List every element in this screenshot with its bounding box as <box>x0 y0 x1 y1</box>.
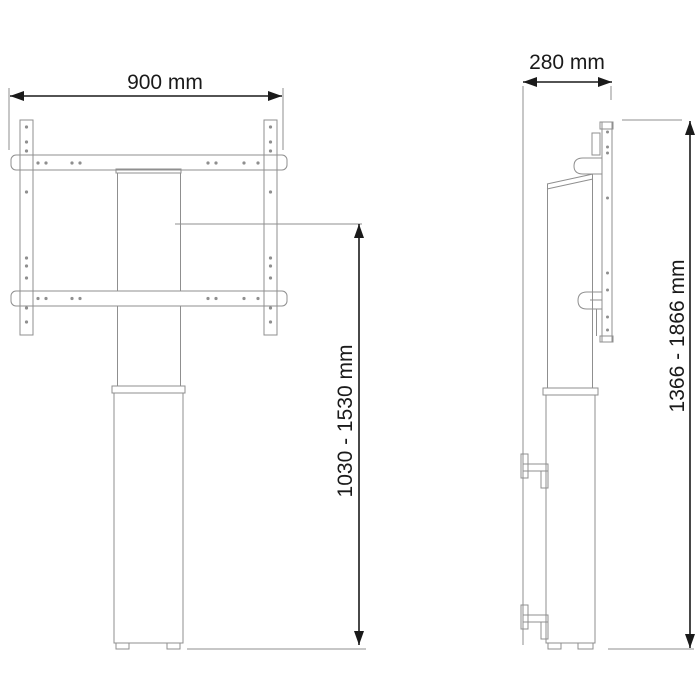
front-view <box>11 120 287 649</box>
front-outer-column <box>112 386 185 649</box>
total-height-label: 1366 - 1866 mm <box>666 260 689 413</box>
side-depth-label: 280 mm <box>529 51 605 74</box>
front-width-label: 900 mm <box>127 71 203 94</box>
tv-stand-dimension-drawing: 900 mm 1030 - 1530 mm 280 mm 1366 - 1866… <box>0 0 700 700</box>
front-top-crossbar <box>11 155 287 170</box>
dimension-mount-height: 1030 - 1530 mm <box>175 224 366 649</box>
arrowhead-up-icon <box>354 224 364 238</box>
side-cable-hook-upper <box>521 454 548 488</box>
side-inner-column <box>547 174 593 388</box>
side-outer-column <box>543 388 598 649</box>
arrowhead-up-icon <box>685 121 695 135</box>
arrowhead-down-icon <box>354 631 364 645</box>
side-upper-bracket <box>574 133 602 174</box>
front-bottom-crossbar <box>11 291 287 306</box>
arrowhead-down-icon <box>685 634 695 648</box>
front-inner-column <box>116 169 181 386</box>
side-view <box>521 122 613 649</box>
mount-height-label: 1030 - 1530 mm <box>334 345 357 498</box>
side-cable-hook-lower <box>521 605 548 639</box>
technical-drawing-canvas: 900 mm 1030 - 1530 mm 280 mm 1366 - 1866… <box>0 0 700 700</box>
dimension-front-width: 900 mm <box>9 71 283 150</box>
front-top-crossbar-holes <box>36 161 259 164</box>
dimension-side-depth: 280 mm <box>523 51 612 645</box>
arrowhead-left-icon <box>523 77 537 87</box>
arrowhead-right-icon <box>268 91 282 101</box>
side-middle-bracket <box>578 292 602 336</box>
arrowhead-right-icon <box>598 77 612 87</box>
arrowhead-left-icon <box>10 91 24 101</box>
front-bottom-crossbar-holes <box>36 297 259 300</box>
dimension-total-height: 1366 - 1866 mm <box>608 120 695 649</box>
